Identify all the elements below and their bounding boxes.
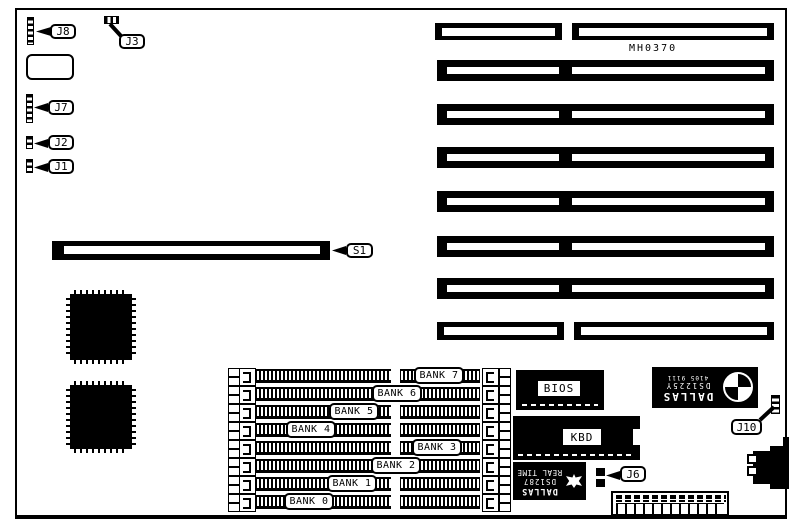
dallas-logo-icon <box>723 373 753 403</box>
isa-slot-4 <box>437 147 774 168</box>
isa-slot-6 <box>437 236 774 257</box>
j10-label: J10 <box>731 419 762 435</box>
bank4-label: BANK 4 <box>286 421 336 438</box>
j7-pin-header <box>26 94 33 123</box>
bank1-label: BANK 1 <box>327 475 377 492</box>
nvram-chip: DALLAS DS1225Y 4105 9111 <box>652 367 758 408</box>
dallas-bat-logo-icon <box>566 474 582 488</box>
rtc-brand: DALLAS <box>513 485 566 495</box>
bank6-label: BANK 6 <box>372 385 422 402</box>
j2-pin-header <box>26 136 33 149</box>
oscillator-socket <box>26 54 74 80</box>
nvram-brand: DALLAS <box>652 389 723 402</box>
simm-socket-bank6 <box>228 386 510 402</box>
nvram-part: DS1225Y <box>652 380 723 389</box>
keyboard-connector <box>770 446 789 489</box>
bank3-label: BANK 3 <box>412 439 462 456</box>
nvram-code: 4105 9111 <box>652 373 723 380</box>
bios-chip: BIOS <box>516 370 604 410</box>
simm-socket-bank4 <box>228 422 510 438</box>
power-connector <box>611 491 729 516</box>
qfp-chip-1 <box>70 294 132 360</box>
j1-label: J1 <box>48 159 74 174</box>
qfp-chip-2 <box>70 385 132 449</box>
isa-slot-7 <box>437 278 774 299</box>
bios-chip-label: BIOS <box>538 381 580 396</box>
j1-pin-header <box>26 159 33 173</box>
board-marking: MH0370 <box>629 43 677 54</box>
bank5-label: BANK 5 <box>329 403 379 420</box>
j2-label: J2 <box>48 135 74 150</box>
rtc-chip: DALLAS DS1287 REAL TIME <box>513 462 586 500</box>
j8-label: J8 <box>50 24 76 39</box>
j3-label: J3 <box>119 34 145 49</box>
j8-pin-header <box>27 17 34 45</box>
simm-socket-bank7 <box>228 368 510 384</box>
keyboard-connector-step <box>783 437 789 447</box>
simm-socket-bank2 <box>228 458 510 474</box>
j7-label: J7 <box>48 100 74 115</box>
isa-slot-1-right <box>572 23 774 40</box>
kbd-chip-notch <box>633 429 640 445</box>
isa-slot-8-left <box>437 322 564 340</box>
isa-slot-5 <box>437 191 774 212</box>
rtc-type: REAL TIME <box>513 468 566 477</box>
isa-slot-1-left <box>435 23 562 40</box>
bank0-label: BANK 0 <box>284 493 334 510</box>
j6-label: J6 <box>620 466 646 482</box>
simm-socket-bank3 <box>228 440 510 456</box>
keyboard-connector-pin2 <box>747 466 758 476</box>
kbd-chip-label: KBD <box>563 429 601 445</box>
simm-socket-bank0 <box>228 494 510 510</box>
bank7-label: BANK 7 <box>414 367 464 384</box>
s1-slot <box>52 241 330 260</box>
motherboard-diagram: J8 J3 J7 J2 J1 S1 MH0370 <box>0 0 791 527</box>
s1-label: S1 <box>346 243 373 258</box>
j6-connector <box>596 468 605 487</box>
kbd-chip: KBD <box>513 416 640 460</box>
rtc-part: DS1287 <box>513 476 566 485</box>
isa-slot-8-right <box>574 322 774 340</box>
isa-slot-3 <box>437 104 774 125</box>
isa-slot-2 <box>437 60 774 81</box>
keyboard-connector-pin1 <box>747 454 758 464</box>
bank2-label: BANK 2 <box>371 457 421 474</box>
